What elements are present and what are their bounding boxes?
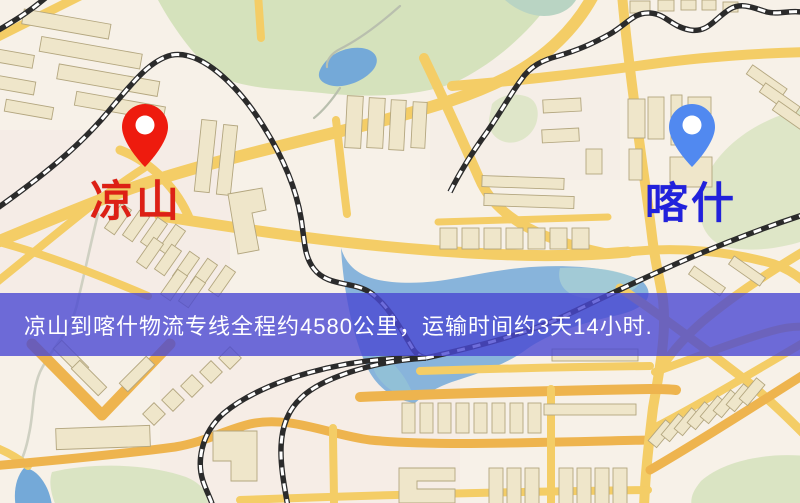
destination-pin-shape (669, 104, 715, 167)
origin-city-label: 凉山 (90, 181, 182, 224)
origin-pin-shape (122, 104, 168, 167)
destination-city-label: 喀什 (645, 183, 737, 226)
base-map (0, 0, 800, 503)
route-info-banner: 凉山到喀什物流专线全程约4580公里，运输时间约3天14小时. (0, 293, 800, 356)
destination-pin-icon[interactable] (669, 104, 715, 168)
origin-pin-icon[interactable] (122, 104, 168, 168)
map-view: 凉山 喀什 凉山到喀什物流专线全程约4580公里，运输时间约3天14小时. (0, 0, 800, 503)
route-info-text: 凉山到喀什物流专线全程约4580公里，运输时间约3天14小时. (24, 309, 653, 341)
